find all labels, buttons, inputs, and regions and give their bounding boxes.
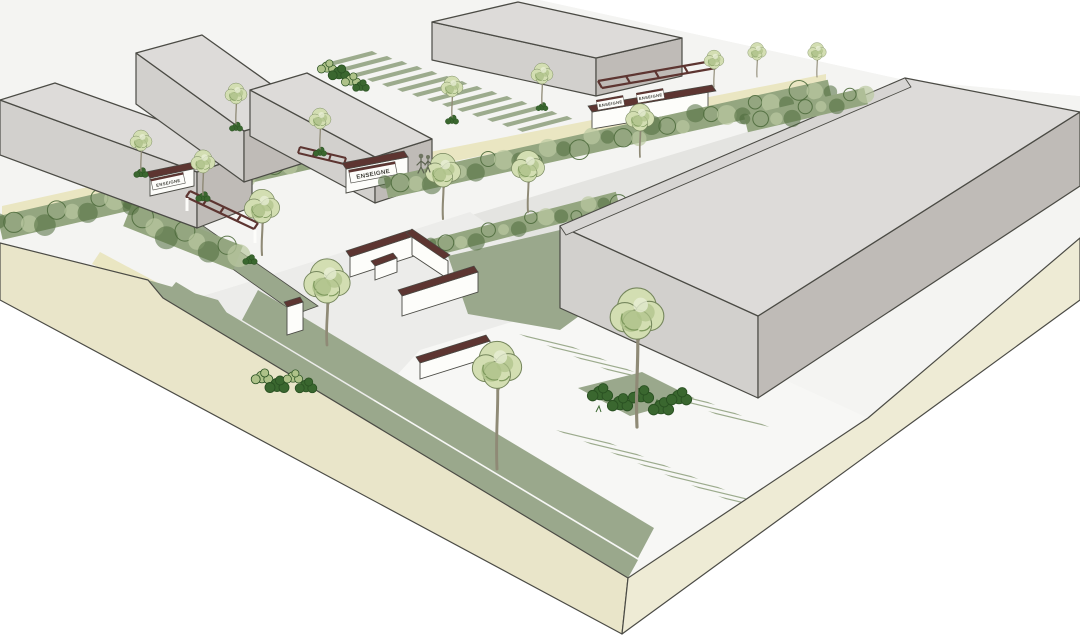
axonometric-site-sketch: ENSEIGNE ENSEIGNE ENSEIGNE — [0, 0, 1080, 635]
site-plan-drawing: ENSEIGNE ENSEIGNE ENSEIGNE — [0, 0, 1080, 635]
